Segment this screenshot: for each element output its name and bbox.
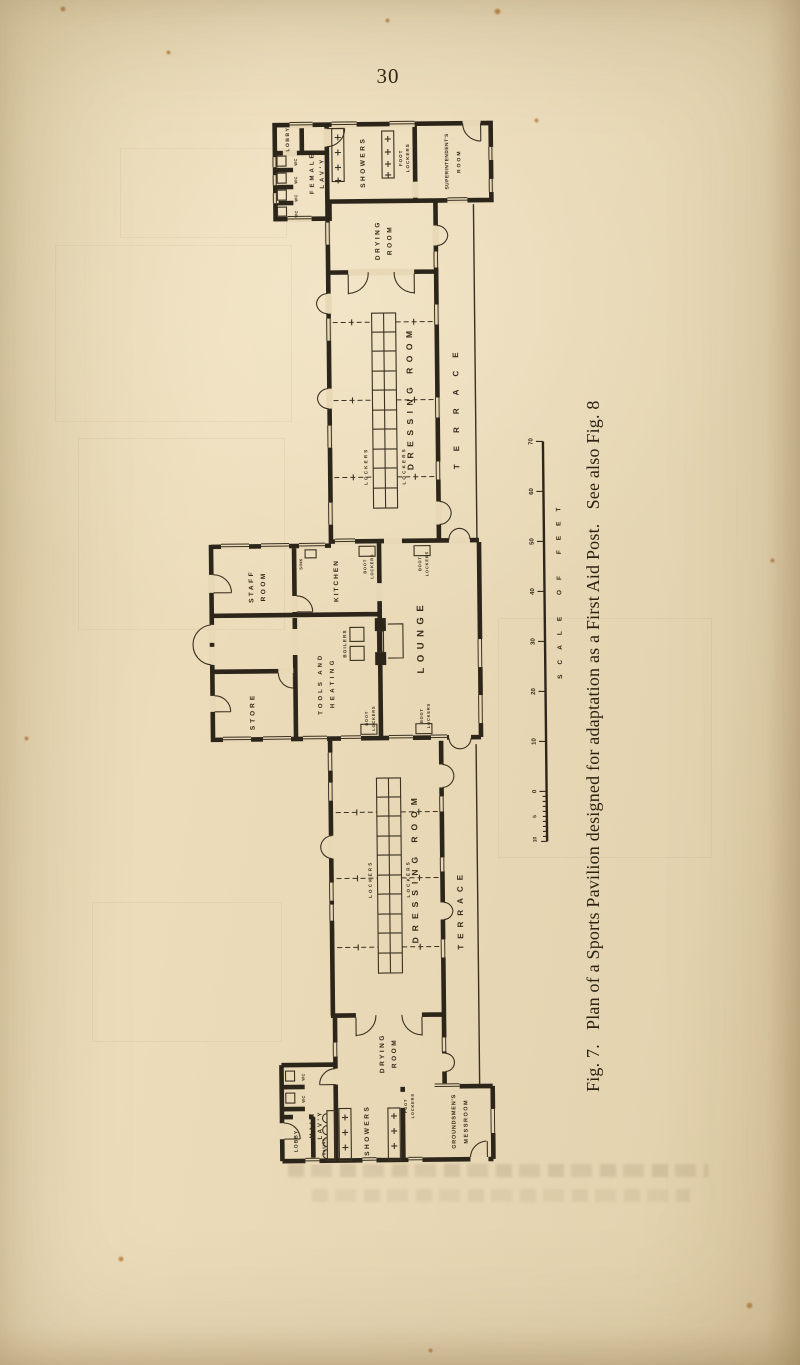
label-groundsmens-messroom: GROUNDSMEN'S	[451, 1094, 458, 1149]
label-foot-lockers-top: LOCKERS	[405, 143, 410, 172]
label-boot-lockers: BOOT	[362, 559, 367, 574]
scale-bar-title: SCALE OF FEET	[555, 498, 564, 679]
label-lockers: LOCKERS	[363, 448, 368, 485]
label-lobby-top: LOBBY	[285, 127, 291, 152]
label-lockers: LOCKERS	[405, 860, 410, 897]
label-terrace-1: TERRACE	[451, 339, 461, 469]
scale-bar: 70 60 50 40 30 20 10 0 5 10 SCALE OF FEE…	[528, 437, 566, 842]
label-lockers: LOCKERS	[401, 447, 406, 484]
label-wc: WC	[301, 1095, 306, 1103]
label-staff-room: ROOM	[260, 571, 267, 601]
label-drying-room-2: DRYING	[379, 1033, 386, 1073]
label-boilers: BOILERS	[342, 629, 347, 657]
scale-tick-label: 10	[532, 737, 538, 744]
label-drying-room-1: ROOM	[386, 225, 393, 255]
label-boot-lockers: BOOT	[417, 556, 422, 571]
label-wc: WC	[293, 194, 298, 202]
label-female-lav: LAV'Y	[320, 157, 326, 189]
label-kitchen: KITCHEN	[333, 559, 340, 602]
label-boot-lockers: BOOT	[364, 711, 369, 726]
label-drying-room-2: ROOM	[391, 1038, 398, 1068]
plan-wall-openings	[203, 120, 504, 1165]
label-boot-lockers: LOCKERS	[369, 554, 374, 579]
label-tools-heating: HEATING	[330, 657, 337, 708]
label-male-lav: MALE	[310, 1111, 316, 1138]
scale-tick-label: 20	[531, 687, 537, 694]
label-female-lav: FEMALE	[309, 151, 315, 194]
label-store: STORE	[249, 693, 256, 730]
page-edge-shadow	[766, 0, 800, 1365]
label-dressing-room-2: DRESSING ROOM	[409, 792, 421, 943]
label-male-lav: LAV'Y	[317, 1110, 323, 1140]
scale-tick-label: 30	[531, 637, 537, 644]
label-superintendents-room: ROOM	[456, 149, 462, 173]
label-boot-lockers: LOCKERS	[371, 706, 376, 731]
label-boot-lockers: BOOT	[419, 708, 424, 723]
label-basins: BASINS	[322, 1138, 326, 1155]
scale-tick-label: 5	[532, 815, 538, 818]
label-boot-lockers: LOCKERS	[424, 551, 429, 576]
scale-tick-label: 70	[528, 437, 534, 444]
label-lockers: LOCKERS	[367, 860, 372, 897]
label-foot-lockers-bottom: FOOT	[403, 1099, 408, 1113]
scale-tick-label: 60	[529, 487, 535, 494]
label-wc: WC	[294, 210, 299, 218]
scale-tick-label: 40	[530, 587, 536, 594]
label-foot-lockers-bottom: LOCKERS	[410, 1093, 415, 1118]
label-foot-lockers-top: FOOT	[398, 150, 403, 167]
scale-tick-label: 50	[530, 537, 536, 544]
floor-plan: LOBBY WC WC WC WC FEMALE LAV'Y SHOWERS F…	[0, 0, 800, 1365]
page-edge-shadow-bottom	[0, 1325, 800, 1365]
label-wc: WC	[293, 176, 298, 184]
label-showers-bottom: SHOWERS	[364, 1105, 372, 1156]
plan-walls	[205, 123, 502, 1162]
label-wc: WC	[293, 158, 298, 166]
label-superintendents-room: SUPERINTENDENT'S	[444, 133, 451, 190]
figure-caption: Fig. 7. Plan of a Sports Pavilion design…	[583, 256, 609, 1092]
label-groundsmens-messroom: MESSROOM	[463, 1099, 469, 1144]
label-lounge: LOUNGE	[415, 600, 427, 674]
label-wc: WC	[301, 1073, 306, 1081]
label-showers-top: SHOWERS	[359, 137, 367, 188]
label-tools-heating: TOOLS AND	[318, 653, 325, 715]
label-sink: SINK	[298, 558, 303, 570]
scale-tick-label: 0	[532, 789, 538, 793]
scanned-book-page: { "page": { "number": "30", "caption": "…	[0, 0, 800, 1365]
label-staff-room: STAFF	[248, 570, 255, 603]
label-terrace-2: TERRACE	[456, 869, 466, 950]
label-drying-room-1: DRYING	[374, 220, 381, 260]
scale-tick-label: 10	[532, 836, 538, 842]
label-lobby-bottom: LOBBY	[293, 1130, 299, 1153]
label-boot-lockers: LOCKERS	[426, 703, 431, 728]
